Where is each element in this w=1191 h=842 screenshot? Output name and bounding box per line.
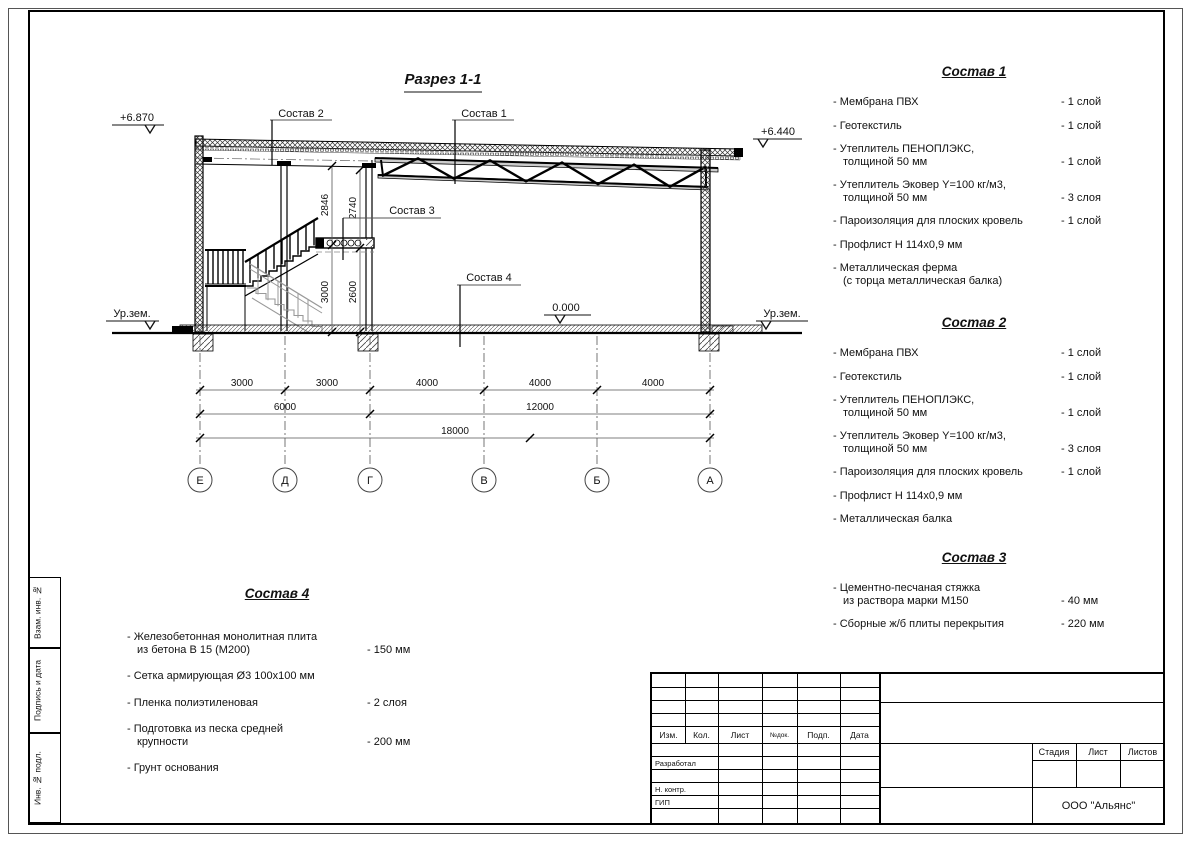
list-item: - Грунт основания <box>127 762 427 775</box>
list-item: - Пленка полиэтиленовая- 2 слоя <box>127 697 427 710</box>
svg-text:18000: 18000 <box>441 426 469 437</box>
svg-text:Состав 2: Состав 2 <box>278 108 324 120</box>
sostav-1-title: Состав 1 <box>833 64 1115 79</box>
roof-truss <box>375 158 718 190</box>
sostav-3-title: Состав 3 <box>833 550 1115 565</box>
list-item: - Утеплитель Эковер Y=100 кг/м3,толщиной… <box>833 430 1115 455</box>
list-item: - Утеплитель ПЕНОПЛЭКС,толщиной 50 мм- 1… <box>833 143 1115 168</box>
svg-text:Состав 1: Состав 1 <box>461 108 507 120</box>
tb-col-kol: Кол. <box>685 730 718 740</box>
sostav-2-title: Состав 2 <box>833 315 1115 330</box>
tb-sheets-col: Листов <box>1120 747 1165 757</box>
sostav-3-block: Состав 3 - Цементно-песчаная стяжкаиз ра… <box>833 550 1115 642</box>
vertical-dimensions: 2846 2740 3000 2600 <box>320 162 364 336</box>
list-item: - Геотекстиль- 1 слой <box>833 120 1115 133</box>
svg-text:3000: 3000 <box>231 378 254 389</box>
tb-col-izm: Изм. <box>652 730 685 740</box>
svg-text:+6.440: +6.440 <box>761 126 795 138</box>
axis-bubbles: Е Д Г В Б А <box>188 468 722 492</box>
tb-col-ndok: №док. <box>762 732 797 739</box>
list-item: - Профлист Н 114х0,9 мм <box>833 490 1115 503</box>
svg-text:А: А <box>706 475 714 487</box>
svg-text:Д: Д <box>281 475 289 487</box>
list-item: - Железобетонная монолитная плитаиз бето… <box>127 631 427 656</box>
drawing-title: Разрез 1-1 <box>404 71 482 92</box>
tb-col-list: Лист <box>718 730 762 740</box>
sidebar-label: Подпись и дата <box>29 649 45 732</box>
svg-text:Состав 3: Состав 3 <box>389 205 435 217</box>
sostav-1-block: Состав 1 - Мембрана ПВХ- 1 слой - Геотек… <box>833 64 1115 298</box>
tb-role-ncontrol: Н. контр. <box>655 785 686 794</box>
svg-text:В: В <box>480 475 487 487</box>
list-item: - Мембрана ПВХ- 1 слой <box>833 96 1115 109</box>
list-item: - Пароизоляция для плоских кровель- 1 сл… <box>833 215 1115 228</box>
dimension-rows: 3000 3000 4000 4000 4000 6000 12000 1800… <box>196 378 714 442</box>
list-item: - Металлическая балка <box>833 513 1115 526</box>
svg-text:0.000: 0.000 <box>552 302 580 314</box>
sostav-4-block: Состав 4 - Железобетонная монолитная пли… <box>127 586 427 789</box>
drawing-sheet: Разрез 1-1 <box>0 0 1191 842</box>
tb-stage-col: Стадия <box>1032 747 1076 757</box>
svg-text:Б: Б <box>593 475 600 487</box>
tb-col-data: Дата <box>840 730 879 740</box>
svg-text:6000: 6000 <box>274 402 297 413</box>
sostav-2-block: Состав 2 - Мембрана ПВХ- 1 слой - Геотек… <box>833 315 1115 537</box>
svg-text:4000: 4000 <box>642 378 665 389</box>
sidebar-label: Инв. № подл. <box>29 734 45 822</box>
mezzanine-slab <box>316 238 374 252</box>
svg-text:Е: Е <box>196 475 203 487</box>
svg-text:4000: 4000 <box>416 378 439 389</box>
list-item: - Утеплитель ПЕНОПЛЭКС,толщиной 50 мм- 1… <box>833 394 1115 419</box>
sidebar-box-vzam: Взам. инв. № <box>28 577 61 648</box>
ground-floor <box>112 325 802 351</box>
svg-text:2600: 2600 <box>348 280 359 303</box>
svg-text:3000: 3000 <box>320 280 331 303</box>
sidebar-label: Взам. инв. № <box>29 578 45 647</box>
list-item: - Металлическая ферма(с торца металличес… <box>833 262 1115 287</box>
list-item: - Подготовка из песка среднейкрупности- … <box>127 723 427 748</box>
list-item: - Утеплитель Эковер Y=100 кг/м3,толщиной… <box>833 179 1115 204</box>
tb-sheet-col: Лист <box>1076 747 1120 757</box>
list-item: - Цементно-песчаная стяжкаиз раствора ма… <box>833 582 1115 607</box>
list-item: - Геотекстиль- 1 слой <box>833 371 1115 384</box>
tb-role-developer: Разработал <box>655 759 696 768</box>
svg-text:4000: 4000 <box>529 378 552 389</box>
list-item: - Пароизоляция для плоских кровель- 1 сл… <box>833 466 1115 479</box>
svg-text:2846: 2846 <box>320 193 331 216</box>
list-item: - Сборные ж/б плиты перекрытия- 220 мм <box>833 618 1115 631</box>
svg-text:Разрез 1-1: Разрез 1-1 <box>404 71 481 88</box>
svg-text:+6.870: +6.870 <box>120 112 154 124</box>
list-item: - Мембрана ПВХ- 1 слой <box>833 347 1115 360</box>
sidebar-box-inv: Инв. № подл. <box>28 733 61 823</box>
svg-text:Г: Г <box>367 475 373 487</box>
svg-text:Ур.зем.: Ур.зем. <box>763 308 800 320</box>
tb-role-gip: ГИП <box>655 798 670 807</box>
svg-text:2740: 2740 <box>348 196 359 219</box>
sidebar-box-podpis: Подпись и дата <box>28 648 61 733</box>
staircase <box>205 218 322 332</box>
list-item: - Профлист Н 114х0,9 мм <box>833 239 1115 252</box>
svg-text:Ур.зем.: Ур.зем. <box>113 308 150 320</box>
list-item: - Сетка армирующая Ø3 100х100 мм <box>127 670 427 683</box>
svg-text:12000: 12000 <box>526 402 554 413</box>
svg-text:Состав 4: Состав 4 <box>466 272 512 284</box>
title-block: Изм. Кол. Лист №док. Подп. Дата Разработ… <box>650 672 1163 823</box>
sostav-4-title: Состав 4 <box>127 586 427 601</box>
svg-text:3000: 3000 <box>316 378 339 389</box>
company-name: ООО "Альянс" <box>1032 787 1165 825</box>
tb-col-podp: Подп. <box>797 730 840 740</box>
